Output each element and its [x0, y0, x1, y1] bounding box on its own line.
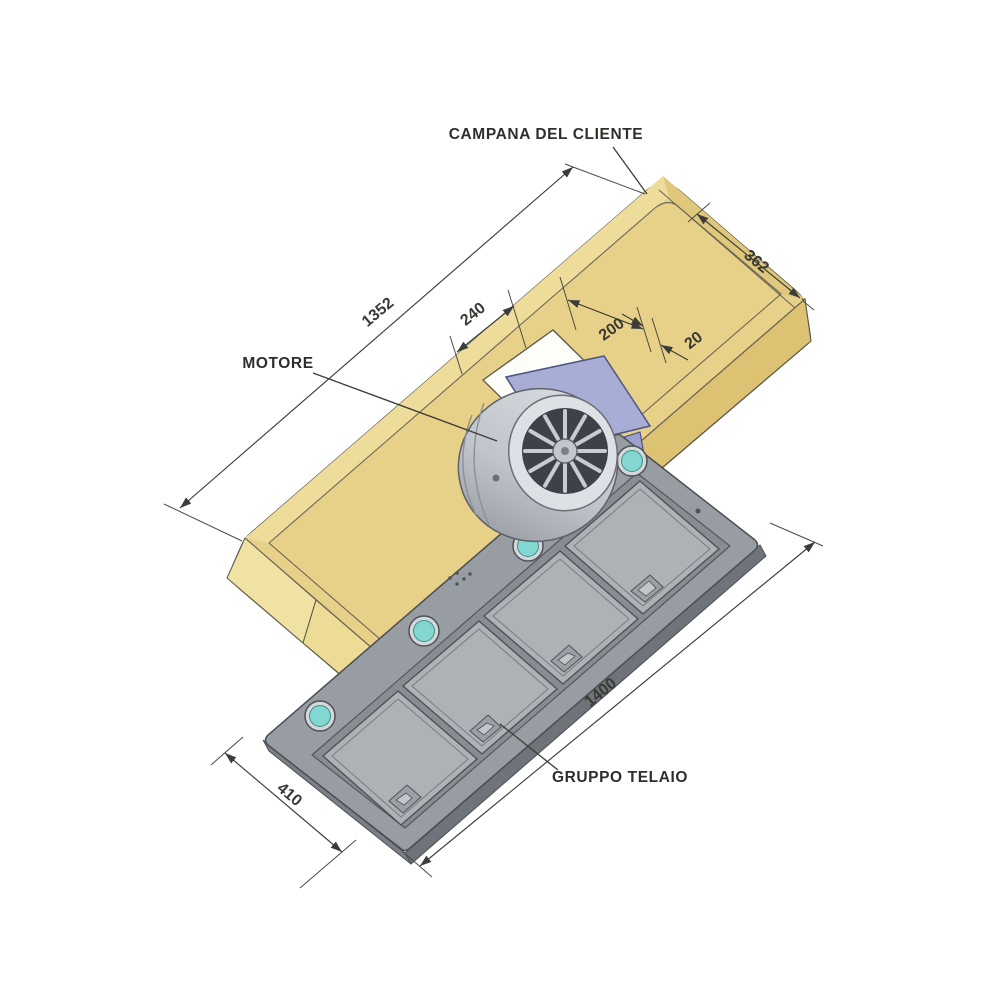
fan-hub-center — [561, 447, 569, 455]
frame-label: GRUPPO TELAIO — [552, 769, 688, 786]
hood-label: CAMPANA DEL CLIENTE — [449, 126, 644, 143]
panel-pin — [696, 509, 701, 514]
dim-text-410: 410 — [273, 780, 304, 810]
motor-label: MOTORE — [242, 355, 313, 372]
spot-light-4 — [305, 701, 335, 731]
spot-light-1 — [617, 446, 647, 476]
light-lens — [622, 451, 643, 472]
motor-bolt — [493, 475, 500, 482]
diagram-page: 1352 240 200 20 362 — [0, 0, 1000, 1000]
spot-light-3 — [409, 616, 439, 646]
hood-installation-diagram: 1352 240 200 20 362 — [0, 0, 1000, 1000]
hood-leader-line — [613, 147, 647, 194]
light-lens — [310, 706, 331, 727]
light-lens — [414, 621, 435, 642]
dim-text-240: 240 — [457, 299, 489, 329]
